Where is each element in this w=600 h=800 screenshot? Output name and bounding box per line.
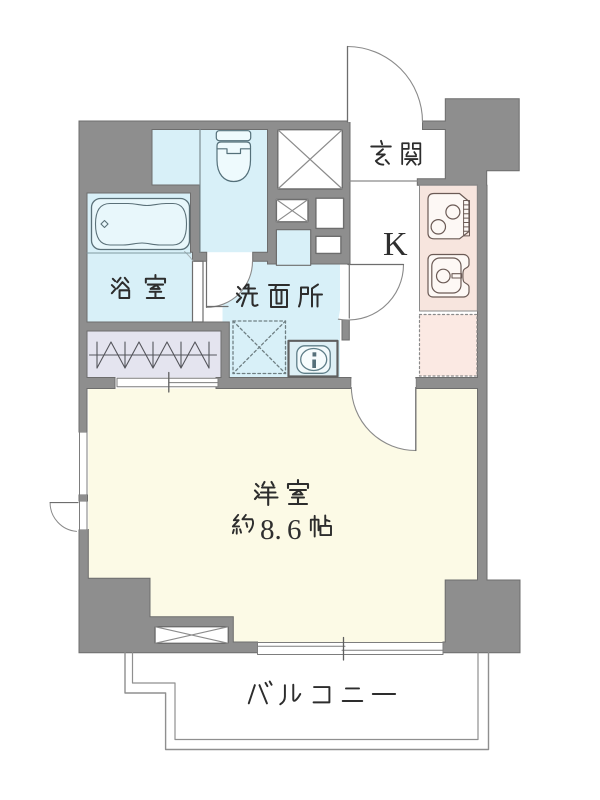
- svg-text:8.: 8.: [260, 514, 282, 546]
- svg-text:6: 6: [287, 514, 302, 546]
- svg-text:K: K: [383, 226, 408, 263]
